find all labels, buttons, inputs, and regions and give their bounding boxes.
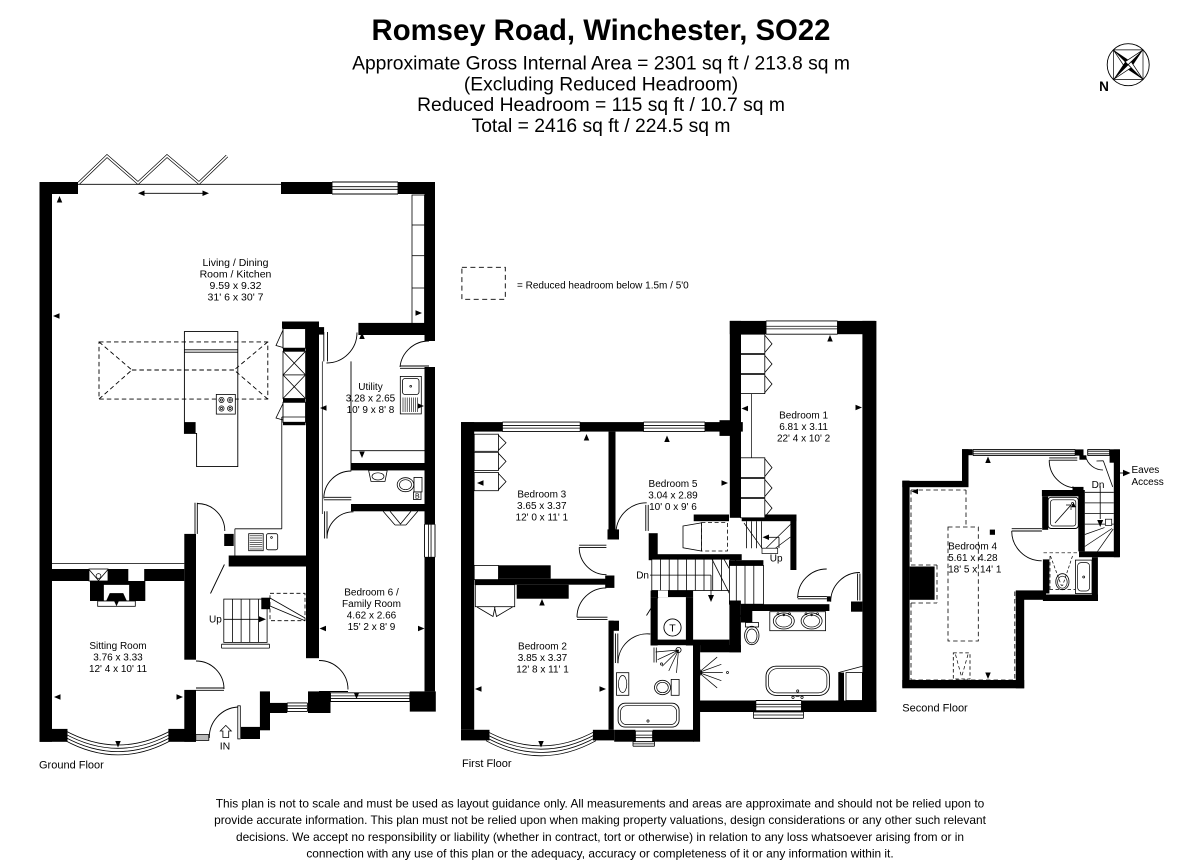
svg-text:Dn: Dn [1092,480,1105,491]
svg-text:Reduced Headroom = 115 sq ft /: Reduced Headroom = 115 sq ft / 10.7 sq m [417,95,785,116]
svg-text:T: T [669,623,676,635]
svg-text:Sitting Room: Sitting Room [89,641,146,652]
svg-text:Romsey Road, Winchester, SO22: Romsey Road, Winchester, SO22 [372,14,831,47]
svg-text:Total = 2416 sq ft / 224.5 sq: Total = 2416 sq ft / 224.5 sq m [472,116,731,137]
svg-text:Bedroom 2: Bedroom 2 [518,642,567,653]
svg-text:N: N [1099,79,1109,94]
svg-text:Up: Up [770,554,783,565]
svg-text:= Reduced headroom below 1.5m: = Reduced headroom below 1.5m / 5'0 [517,280,689,291]
svg-text:This plan is not to scale and: This plan is not to scale and must be us… [216,797,985,811]
svg-text:Bedroom 6 /: Bedroom 6 / [344,588,399,599]
svg-text:3.85 x 3.37: 3.85 x 3.37 [518,653,568,664]
svg-text:9.59 x 9.32: 9.59 x 9.32 [210,280,262,292]
svg-text:22' 4 x 10' 2: 22' 4 x 10' 2 [777,433,831,444]
svg-text:15' 2 x 8' 9: 15' 2 x 8' 9 [348,622,396,633]
svg-text:Family Room: Family Room [342,599,401,610]
svg-text:12' 0 x 11' 1: 12' 0 x 11' 1 [516,513,569,524]
svg-text:4.62 x 2.66: 4.62 x 2.66 [347,611,397,622]
svg-text:Ground Floor: Ground Floor [39,759,104,771]
svg-text:First Floor: First Floor [462,758,512,770]
svg-text:(Excluding Reduced Headroom): (Excluding Reduced Headroom) [464,74,738,95]
svg-text:Room / Kitchen: Room / Kitchen [200,269,272,281]
svg-text:provide accurate information.: provide accurate information. This plan … [214,813,986,827]
svg-text:Eaves: Eaves [1132,465,1160,476]
svg-text:Bedroom 4: Bedroom 4 [948,541,997,552]
svg-text:Up: Up [209,615,222,626]
svg-text:10' 9 x 8' 8: 10' 9 x 8' 8 [347,405,395,416]
svg-text:Access: Access [1132,477,1164,488]
svg-text:Bedroom 1: Bedroom 1 [779,410,828,421]
svg-text:Utility: Utility [358,382,382,393]
svg-text:Approximate Gross Internal Are: Approximate Gross Internal Area = 2301 s… [352,54,850,75]
svg-text:12' 8 x 11' 1: 12' 8 x 11' 1 [516,665,569,676]
svg-text:10' 0 x 9' 6: 10' 0 x 9' 6 [649,502,697,513]
svg-text:31' 6 x 30' 7: 31' 6 x 30' 7 [208,292,264,304]
svg-text:5.61 x 4.28: 5.61 x 4.28 [948,553,998,564]
svg-text:3.76 x 3.33: 3.76 x 3.33 [93,652,143,663]
svg-text:3.28 x 2.65: 3.28 x 2.65 [346,394,396,405]
svg-text:decisions. We accept no respon: decisions. We accept no responsibility o… [236,830,964,844]
svg-text:3.04 x 2.89: 3.04 x 2.89 [648,491,698,502]
svg-text:3.65 x 3.37: 3.65 x 3.37 [517,501,567,512]
svg-text:connection with any use of thi: connection with any use of this plan or … [306,847,893,861]
svg-text:Second Floor: Second Floor [902,703,968,715]
svg-text:IN: IN [220,741,231,753]
svg-text:6.81 x 3.11: 6.81 x 3.11 [779,422,828,433]
svg-text:12' 4 x 10' 11: 12' 4 x 10' 11 [89,664,148,675]
svg-text:B: B [415,493,420,500]
svg-text:18' 5 x 14' 1: 18' 5 x 14' 1 [948,564,1002,575]
svg-text:Living / Dining: Living / Dining [203,257,269,269]
svg-text:Bedroom 5: Bedroom 5 [649,479,698,490]
svg-text:Bedroom 3: Bedroom 3 [517,490,566,501]
svg-text:Dn: Dn [636,571,649,582]
